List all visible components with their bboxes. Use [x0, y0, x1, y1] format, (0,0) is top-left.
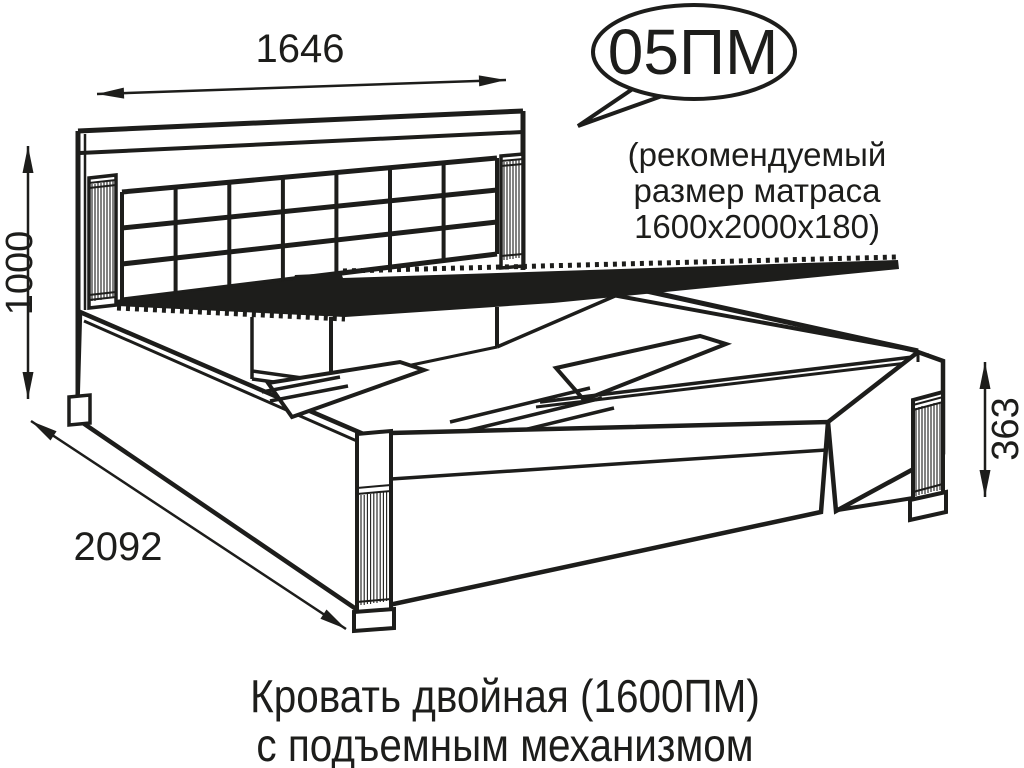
- leg-right: [910, 392, 946, 520]
- dimension-base-height-label: 363: [985, 397, 1024, 460]
- bed-diagram-canvas: 1646 1000 2092 363 05ПМ (рекомендуемый р…: [0, 0, 1024, 768]
- model-callout: 05ПМ: [578, 5, 795, 126]
- mattress-note-line-3: 1600х2000х180): [634, 208, 880, 245]
- technical-drawing-page: 1646 1000 2092 363 05ПМ (рекомендуемый р…: [0, 0, 1024, 768]
- caption-line-2: с подъемным механизмом: [256, 721, 753, 768]
- bed-base-drawing: [69, 279, 946, 631]
- mechanism-beam-left: [268, 362, 424, 417]
- dimension-length-label: 2092: [74, 525, 163, 569]
- leg-rear-left: [69, 395, 90, 425]
- dimension-width: 1646: [97, 27, 506, 94]
- mattress-note-line-1: (рекомендуемый: [628, 136, 887, 173]
- dimension-base-height: 363: [985, 362, 1024, 497]
- caption-line-1: Кровать двойная (1600ПМ): [250, 672, 760, 723]
- mattress-note: (рекомендуемый размер матраса 1600х2000х…: [628, 136, 887, 245]
- leg-front-left: [354, 431, 394, 631]
- dimension-width-label: 1646: [256, 27, 345, 71]
- mattress-note-line-2: размер матраса: [633, 172, 881, 209]
- caption: Кровать двойная (1600ПМ) с подъемным мех…: [250, 672, 760, 768]
- footboard-panel: [361, 422, 828, 611]
- dimension-height-label: 1000: [0, 231, 41, 316]
- dimension-height: 1000: [0, 146, 41, 399]
- headboard-post-right: [501, 154, 523, 268]
- model-label: 05ПМ: [608, 16, 779, 88]
- lifted-mattress-platform: [115, 257, 899, 319]
- headboard-post-left: [89, 175, 116, 308]
